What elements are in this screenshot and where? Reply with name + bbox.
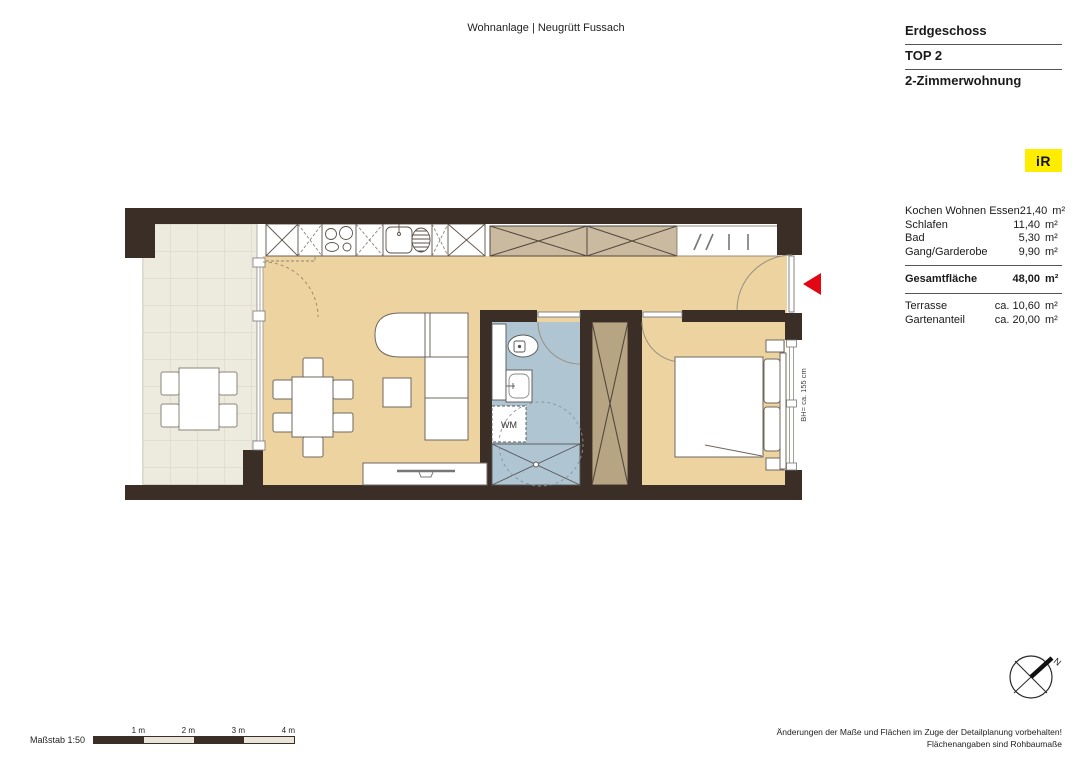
entrance-arrow-icon (803, 273, 821, 295)
coat-rack (677, 226, 783, 256)
scale-segment (94, 737, 144, 743)
floor-plan-drawing: BH= ca. 155 cm WM (0, 0, 1092, 772)
scale-tick: 2 m (182, 726, 195, 735)
floorplan-page: { "header": { "project_title": "Wohnanla… (0, 0, 1092, 772)
chair (161, 404, 179, 427)
chair (161, 372, 179, 395)
scale-label: Maßstab 1:50 (30, 735, 85, 745)
disclaimer-line: Änderungen der Maße und Flächen im Zuge … (777, 727, 1062, 739)
chair (333, 380, 353, 399)
tv-sideboard (363, 463, 487, 485)
mattress (675, 357, 763, 457)
terrace-table (179, 368, 219, 430)
window-sill-height-label: BH= ca. 155 cm (799, 368, 808, 422)
compass-icon (1010, 656, 1052, 698)
installation-wall (492, 324, 506, 400)
chair (303, 358, 323, 378)
scale-segment (194, 737, 244, 743)
chair (219, 372, 237, 395)
chair (333, 413, 353, 432)
scale-bar: 1 m 2 m 3 m 4 m (93, 736, 295, 744)
chair (273, 380, 293, 399)
shaft (592, 322, 628, 485)
wc-icon (508, 335, 538, 357)
coffee-table (383, 378, 411, 407)
kitchen-counter (266, 224, 485, 261)
disclaimer-line: Flächenangaben sind Rohbaumaße (777, 739, 1062, 751)
headboard (780, 353, 786, 469)
disclaimer: Änderungen der Maße und Flächen im Zuge … (777, 727, 1062, 750)
north-arrow (1031, 658, 1052, 677)
chair (303, 437, 323, 457)
chair (273, 413, 293, 432)
chair (219, 404, 237, 427)
pillow (764, 359, 780, 403)
scale-tick: 3 m (232, 726, 245, 735)
washbasin-icon (506, 370, 532, 402)
washing-machine-label: WM (501, 420, 517, 430)
pillow (764, 407, 780, 451)
wardrobe-cabinets (490, 226, 677, 256)
scale-segment (144, 737, 194, 743)
scale-tick: 4 m (282, 726, 295, 735)
north-label: N (1052, 656, 1063, 668)
nightstand (766, 340, 784, 352)
terrace (143, 224, 257, 485)
scale-segment (244, 737, 294, 743)
scale-tick: 1 m (132, 726, 145, 735)
dining-table (292, 377, 333, 437)
